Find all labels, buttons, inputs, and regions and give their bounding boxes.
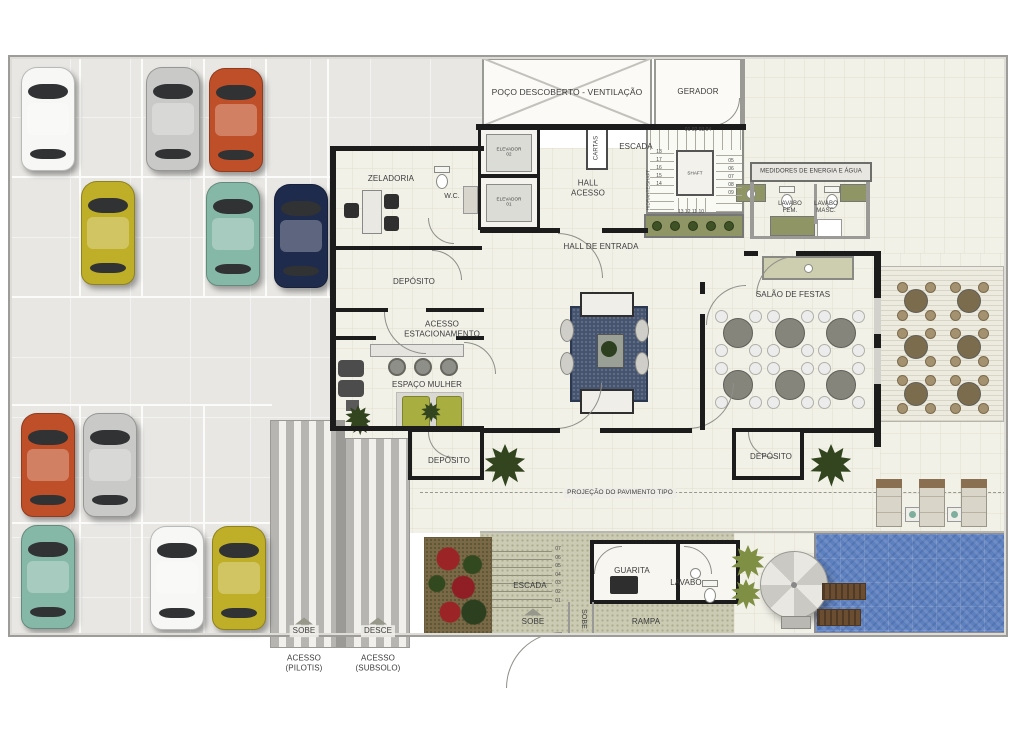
salao-round-table-chair — [852, 396, 865, 409]
terrace-round-table — [957, 382, 981, 406]
car-rw — [155, 149, 191, 159]
wall-segment — [796, 251, 880, 256]
guarita-desk — [610, 576, 638, 594]
salon-chair — [388, 358, 406, 376]
umbrella-pole — [791, 582, 797, 588]
terrace-round-table-chair — [950, 356, 961, 367]
direction-label-sobe-escada: SOBE — [522, 617, 545, 627]
room-label-zeladoria: ZELADORIA — [368, 174, 414, 184]
up-arrow-icon — [524, 609, 542, 616]
car-roof — [27, 103, 69, 136]
stair-step-number: 02 — [555, 589, 561, 595]
toilet-tank — [702, 580, 718, 587]
deck-lounger-headrest — [961, 479, 987, 488]
escada-bottom-treads — [492, 546, 552, 608]
salao-round-table-chair — [749, 344, 762, 357]
car-white-2 — [150, 526, 204, 630]
car-rw — [30, 607, 66, 617]
room-label-lavabo-masc: LAVABO MASC. — [814, 201, 838, 215]
terrace-round-table-chair — [978, 375, 989, 386]
wc-shower — [463, 186, 478, 214]
terrace-round-table-chair — [897, 356, 908, 367]
counter — [770, 216, 815, 236]
hall-bench — [580, 292, 634, 317]
building-south-face — [480, 531, 1006, 533]
pool-lounger — [822, 583, 866, 600]
floor-plan: 1817161514050607080907060504030201 POÇO … — [0, 0, 1024, 748]
zeladoria-table — [362, 190, 382, 234]
car-roof — [215, 104, 257, 137]
car-ws — [216, 85, 256, 99]
sink — [804, 264, 813, 273]
terrace-round-table-chair — [978, 282, 989, 293]
wall-segment — [426, 308, 484, 312]
planter-box — [840, 184, 868, 202]
stair-step-number: 06 — [555, 555, 561, 561]
deck-table-item — [951, 511, 958, 518]
lavabo-wing-wall — [750, 236, 870, 239]
salao-round-table-chair — [749, 362, 762, 375]
room-label-cartas: CARTAS — [593, 136, 600, 160]
car-teal-2 — [21, 525, 75, 629]
car-yellow-1 — [81, 181, 135, 285]
terrace-round-table — [904, 335, 928, 359]
toilet-bowl — [704, 588, 716, 603]
room-label-elevador-02: ELEVADOR 02 — [497, 147, 522, 158]
stair-bottom-row-numbers: 13 12 11 10 — [678, 209, 704, 215]
salao-round-table-chair — [767, 362, 780, 375]
elevator-divider-wall — [478, 174, 540, 178]
wall-segment — [484, 428, 560, 433]
salao-round-table-chair — [715, 362, 728, 375]
terrace-round-table-chair — [978, 310, 989, 321]
terrace-round-table-chair — [897, 282, 908, 293]
terrace-round-table-chair — [925, 356, 936, 367]
lavabo-wing-wall — [750, 182, 754, 238]
car-ws — [28, 542, 68, 556]
car-orange-1 — [209, 68, 263, 172]
salao-round-table-chair — [801, 344, 814, 357]
up-arrow-icon — [295, 618, 313, 625]
car-silver-2 — [83, 413, 137, 517]
stair-step-number: 14 — [656, 181, 662, 187]
room-label-lavabo: LAVABO — [670, 578, 701, 588]
terrace-round-table-chair — [950, 282, 961, 293]
terrace-round-table-chair — [978, 328, 989, 339]
room-label-hall-entrada: HALL DE ENTRADA — [564, 242, 639, 252]
wall-segment — [700, 282, 705, 294]
car-rw — [159, 608, 195, 618]
parking-stall-line — [141, 405, 143, 635]
terrace-round-table-chair — [897, 310, 908, 321]
terrace-round-table — [957, 335, 981, 359]
salao-round-table-chair — [818, 310, 831, 323]
salao-round-table-chair — [767, 310, 780, 323]
terrace-round-table-chair — [897, 403, 908, 414]
salao-round-table-chair — [801, 310, 814, 323]
room-label-escada-top: ESCADA — [619, 142, 653, 152]
car-roof — [89, 449, 131, 482]
car-ws — [157, 543, 197, 557]
car-roof — [218, 562, 260, 595]
car-navy-1 — [274, 184, 328, 288]
car-roof — [212, 218, 254, 251]
parking-stall-line — [10, 404, 272, 406]
terrace-round-table-chair — [978, 356, 989, 367]
car-ws — [281, 201, 321, 215]
terrace-round-table-chair — [950, 310, 961, 321]
toilet-bowl — [436, 174, 448, 189]
direction-label-desce: DESCE — [361, 625, 395, 637]
car-ws — [28, 84, 68, 98]
car-rw — [215, 264, 251, 274]
car-roof — [27, 561, 69, 594]
room-label-salao-festas: SALÃO DE FESTAS — [756, 290, 830, 300]
terrace-round-table-chair — [897, 375, 908, 386]
wall-segment — [700, 314, 705, 430]
salao-round-table-chair — [852, 362, 865, 375]
lavabo-wing-wall — [866, 182, 870, 238]
flower-bed — [424, 537, 492, 634]
terrace-round-table-chair — [925, 282, 936, 293]
stair-step-number: 07 — [555, 546, 561, 552]
window — [874, 348, 881, 384]
wall-segment — [802, 428, 880, 433]
room-label-medidores: MEDIDORES DE ENERGIA E ÁGUA — [760, 168, 862, 175]
salon-chair — [440, 358, 458, 376]
terrace-round-table-chair — [950, 403, 961, 414]
salao-round-table — [826, 318, 856, 348]
salao-round-table-chair — [801, 362, 814, 375]
armchair — [338, 380, 364, 397]
parking-stall-line — [10, 176, 332, 178]
terrace-round-table-chair — [925, 310, 936, 321]
salao-round-table-chair — [852, 310, 865, 323]
car-ws — [88, 198, 128, 212]
wall-segment — [744, 251, 758, 256]
car-rw — [218, 150, 254, 160]
car-roof — [280, 220, 322, 253]
salao-round-table — [775, 370, 805, 400]
terrace-round-table-chair — [925, 375, 936, 386]
salao-round-table-chair — [818, 344, 831, 357]
car-ws — [28, 430, 68, 444]
wall-segment — [330, 146, 336, 431]
hall-side-chair — [635, 352, 649, 375]
room-label-hall-acesso: HALL ACESSO — [571, 178, 605, 197]
direction-label-sobe-rampa: SOBE — [579, 609, 587, 629]
ramp-desce-subsolo — [345, 438, 410, 648]
room-label-deposito-ll: DEPÓSITO — [428, 456, 470, 466]
car-ws — [213, 199, 253, 213]
car-rw — [30, 149, 66, 159]
salao-round-table-chair — [818, 396, 831, 409]
salao-round-table-chair — [767, 396, 780, 409]
car-white-1 — [21, 67, 75, 171]
parking-stall-line — [10, 522, 272, 524]
wall-segment — [330, 336, 376, 340]
room-label-deposito-lr: DEPÓSITO — [750, 452, 792, 462]
caption-acesso-pilotis: ACESSO (PILOTIS) — [286, 653, 323, 672]
zeladoria-chair — [344, 203, 359, 218]
stair-step-number: 05 — [555, 563, 561, 569]
gerador-side-wall — [742, 58, 745, 126]
planter-shrub — [670, 221, 680, 231]
room-label-gerador: GERADOR — [677, 87, 718, 97]
hall-side-chair — [560, 352, 574, 375]
wall-segment — [480, 228, 560, 233]
planter-shrub — [652, 221, 662, 231]
zeladoria-chair — [384, 194, 399, 209]
salao-round-table-chair — [767, 344, 780, 357]
zeladoria-chair — [384, 216, 399, 231]
car-orange-2 — [21, 413, 75, 517]
car-roof — [156, 562, 198, 595]
room-label-wc: W.C. — [444, 193, 460, 201]
car-roof — [27, 449, 69, 482]
green-sofa — [436, 396, 462, 428]
salao-round-table-chair — [801, 396, 814, 409]
deck-table-item — [909, 511, 916, 518]
window — [874, 298, 881, 334]
terrace-round-table-chair — [925, 403, 936, 414]
planter-shrub — [688, 221, 698, 231]
stair-step-number: 01 — [555, 598, 561, 604]
direction-label-sobe-left: SOBE — [290, 625, 319, 637]
salao-round-table-chair — [818, 362, 831, 375]
stair-step-number: 17 — [656, 157, 662, 163]
up-arrow-icon — [369, 618, 387, 625]
terrace-round-table — [957, 289, 981, 313]
wall-segment — [330, 308, 388, 312]
car-rw — [221, 608, 257, 618]
salao-round-table-chair — [749, 396, 762, 409]
caption-acesso-subsolo: ACESSO (SUBSOLO) — [356, 653, 401, 672]
wall-segment — [330, 426, 484, 431]
wall-segment — [330, 246, 482, 250]
car-silver-1 — [146, 67, 200, 171]
salao-round-table-chair — [852, 344, 865, 357]
wall-segment — [600, 428, 692, 433]
pool-bench — [781, 616, 811, 629]
wall-segment — [602, 228, 648, 233]
room-label-deposito-ul: DEPÓSITO — [393, 277, 435, 287]
toilet-tank — [824, 186, 840, 193]
stair-step-number: 15 — [656, 173, 662, 179]
room-label-elevador-01: ELEVADOR 01 — [497, 197, 522, 208]
salao-round-table-chair — [749, 310, 762, 323]
salao-round-table — [775, 318, 805, 348]
planter-shrub — [724, 221, 734, 231]
hall-table-plant — [601, 341, 617, 357]
car-rw — [283, 266, 319, 276]
room-label-shaft: SHAFT — [687, 170, 702, 175]
toilet-tank — [434, 166, 450, 173]
car-ws — [153, 84, 193, 98]
hall-side-chair — [635, 319, 649, 342]
car-ws — [90, 430, 130, 444]
terrace-round-table-chair — [897, 328, 908, 339]
salao-round-table-chair — [715, 344, 728, 357]
stair-step-number: 04 — [555, 572, 561, 578]
terrace-round-table-chair — [925, 328, 936, 339]
parking-stall-line — [79, 405, 81, 635]
car-roof — [87, 217, 129, 250]
terrace-round-table — [904, 289, 928, 313]
door-swing-arc — [506, 632, 562, 688]
car-rw — [30, 495, 66, 505]
deck-lounger-headrest — [876, 479, 902, 488]
room-label-espaco-mulher: ESPAÇO MULHER — [392, 380, 462, 390]
stair-step-number: 07 — [728, 174, 734, 180]
stair-step-number: 06 — [728, 166, 734, 172]
car-yellow-2 — [212, 526, 266, 630]
salao-round-table — [826, 370, 856, 400]
ramp-divider-wall — [337, 420, 345, 648]
stair-step-number: 08 — [728, 182, 734, 188]
salon-chair — [414, 358, 432, 376]
hall-side-chair — [560, 319, 574, 342]
stair-step-number: 03 — [555, 580, 561, 586]
armchair — [338, 360, 364, 377]
room-label-poco: POÇO DESCOBERTO - VENTILAÇÃO — [492, 87, 643, 97]
stair-step-number: 05 — [728, 158, 734, 164]
projection-line-label: PROJEÇÃO DO PAVIMENTO TIPO — [564, 488, 676, 498]
room-label-rampa: RAMPA — [632, 617, 660, 627]
room-label-escada-bottom: ESCADA — [513, 581, 547, 591]
terrace-round-table-chair — [950, 375, 961, 386]
deck-lounger-headrest — [919, 479, 945, 488]
ramp-sobe-pilotis — [270, 420, 337, 648]
car-teal-1 — [206, 182, 260, 286]
stair-step-number: 16 — [656, 165, 662, 171]
terrace-round-table-chair — [950, 328, 961, 339]
parking-stall-line — [10, 296, 332, 298]
terrace-round-table — [904, 382, 928, 406]
pool-lounger — [817, 609, 861, 626]
room-label-acesso-estacionamento: ACESSO ESTACIONAMENTO — [404, 319, 480, 338]
guarita-divider-wall — [676, 540, 680, 604]
car-rw — [92, 495, 128, 505]
car-roof — [152, 103, 194, 136]
planter-shrub — [706, 221, 716, 231]
stair-top-row-numbers: 01 02 03 04 — [685, 127, 711, 133]
stair-step-number: 09 — [728, 190, 734, 196]
wall-segment — [330, 146, 484, 151]
stair-step-number: 18 — [656, 149, 662, 155]
car-rw — [90, 263, 126, 273]
room-label-guarita: GUARITA — [614, 566, 650, 576]
room-label-lavabo-fem: LAVABO FEM. — [778, 201, 802, 215]
terrace-round-table-chair — [978, 403, 989, 414]
car-ws — [219, 543, 259, 557]
toilet-tank — [779, 186, 795, 193]
room-label-hidrante: HIDRANTE/SHAFT — [645, 170, 650, 210]
